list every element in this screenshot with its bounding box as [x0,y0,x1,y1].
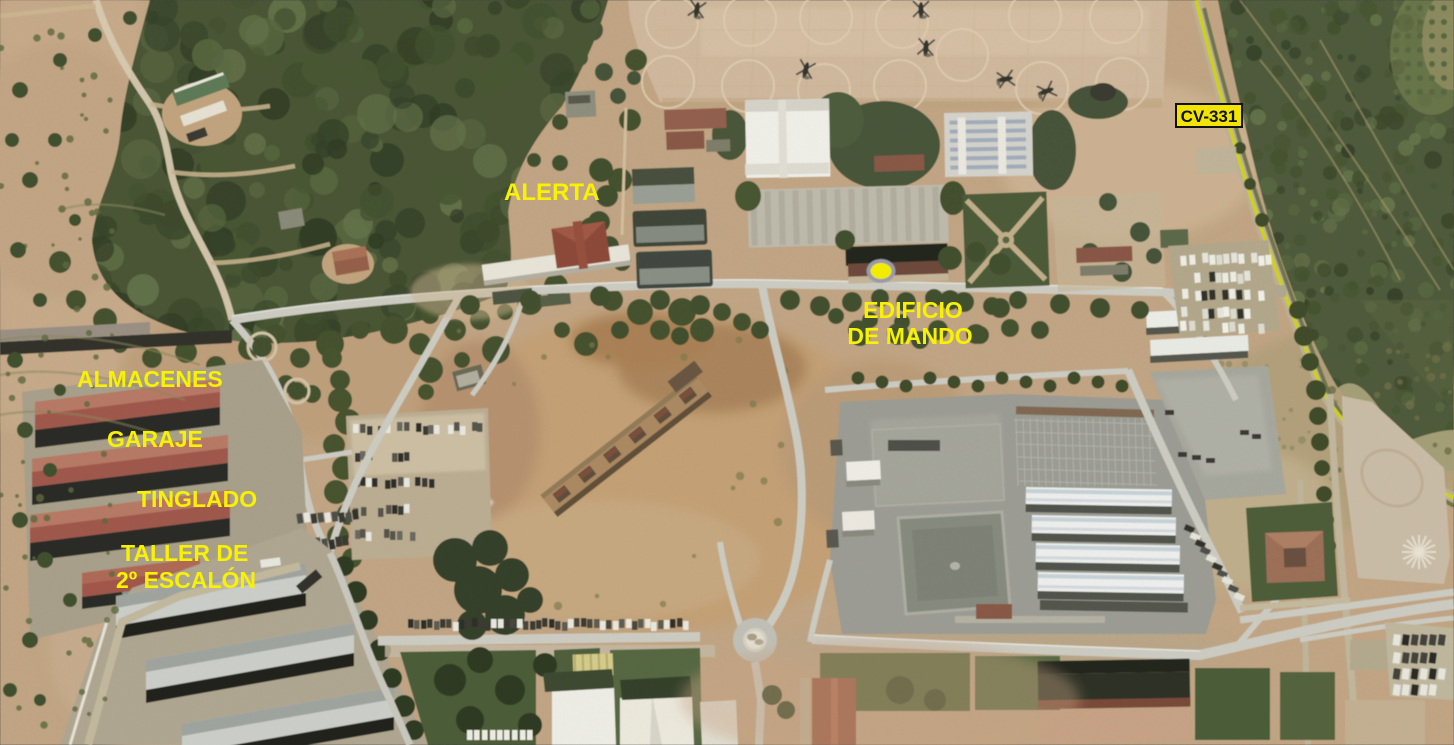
svg-text:EDIFICIO: EDIFICIO [863,297,963,323]
svg-text:2º ESCALÓN: 2º ESCALÓN [116,566,256,593]
svg-text:ALERTA: ALERTA [504,179,600,206]
svg-text:ALMACENES: ALMACENES [77,366,223,392]
svg-text:CV-331: CV-331 [1181,107,1238,126]
svg-text:TINGLADO: TINGLADO [137,486,257,512]
svg-text:TALLER DE: TALLER DE [121,540,248,566]
svg-text:DE MANDO: DE MANDO [847,323,972,349]
svg-text:GARAJE: GARAJE [107,426,203,452]
